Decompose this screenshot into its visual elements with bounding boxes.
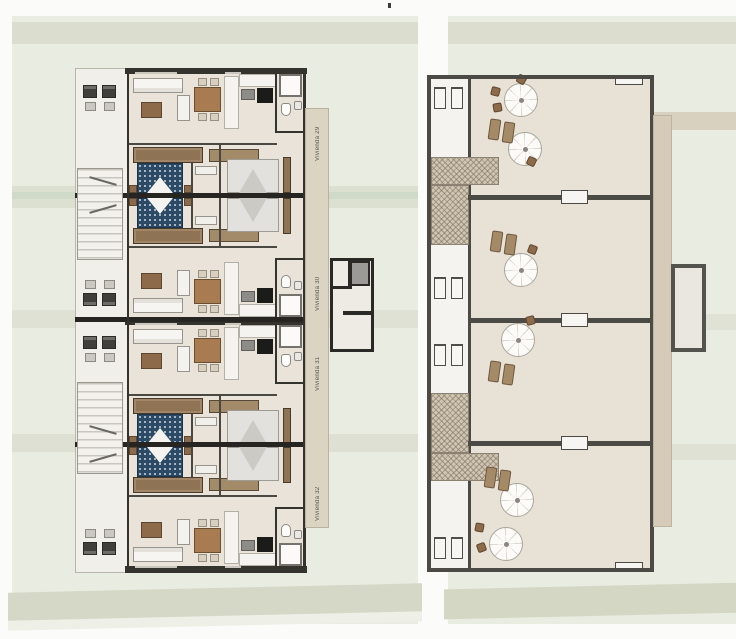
hall-dresser-icon — [195, 216, 217, 225]
balcony-armchair-icon — [83, 336, 97, 349]
parasol-pole-icon — [519, 98, 524, 103]
wardrobe-icon — [283, 408, 291, 444]
interior-wall — [219, 447, 221, 495]
parasol-icon — [501, 323, 535, 357]
dining-table-icon — [194, 528, 221, 553]
stairs-hatch-icon — [431, 157, 499, 185]
terrace-divider-wall — [468, 441, 650, 446]
sofa-icon — [133, 547, 183, 562]
site-stripe — [448, 22, 736, 44]
parasol-pole-icon — [519, 268, 524, 273]
interior-wall — [127, 68, 129, 573]
bathroom-wall — [275, 71, 277, 133]
elevator-icon — [350, 261, 370, 286]
balcony-table-icon — [104, 280, 115, 289]
door-icon — [561, 313, 588, 327]
interior-wall — [219, 198, 221, 246]
kitchen-counter — [239, 304, 277, 317]
dining-chair-icon — [198, 270, 207, 278]
window-icon — [451, 277, 463, 299]
wardrobe-icon — [283, 447, 291, 483]
fridge-icon — [241, 540, 255, 551]
window-icon — [451, 344, 463, 366]
window-icon — [225, 567, 241, 569]
bathroom-wall — [275, 258, 305, 260]
hall-dresser-icon — [195, 417, 217, 426]
balcony-armchair-icon — [102, 85, 116, 98]
unit-label: Vivienda 30 — [306, 259, 330, 329]
nightstand-icon — [129, 185, 137, 193]
balcony-table-icon — [85, 353, 96, 362]
shower-icon — [279, 294, 302, 317]
sink-icon — [294, 101, 302, 110]
balcony-armchair-icon — [83, 293, 97, 306]
sun-lounger-icon — [133, 477, 203, 493]
interior-wall — [128, 143, 277, 145]
sink-icon — [294, 530, 302, 539]
interior-wall — [219, 396, 221, 444]
roof-wall — [427, 75, 654, 79]
unit-label: Vivienda 32 — [306, 469, 330, 539]
interior-wall — [191, 414, 193, 444]
cooktop-icon — [257, 288, 273, 303]
bathroom-wall — [275, 258, 277, 320]
toilet-icon — [281, 103, 291, 116]
dining-chair-icon — [210, 270, 219, 278]
parasol-pole-icon — [516, 338, 521, 343]
coffee-table-icon — [141, 522, 162, 538]
roof-wall — [468, 79, 471, 568]
wardrobe-icon — [283, 198, 291, 234]
armchair-icon — [177, 346, 190, 372]
annex-wall — [348, 261, 351, 288]
exterior-wall — [125, 569, 307, 573]
coffee-table-icon — [141, 273, 162, 289]
parasol-icon — [504, 253, 538, 287]
nightstand-icon — [129, 198, 137, 206]
shower-icon — [279, 543, 302, 566]
parasol-icon — [489, 527, 523, 561]
stairs-icon — [77, 168, 123, 260]
window-icon — [434, 344, 446, 366]
sun-lounger-icon — [133, 398, 203, 414]
dining-chair-icon — [198, 519, 207, 527]
roof-wall — [427, 75, 431, 572]
annex-wall — [343, 311, 371, 315]
bathroom-wall — [275, 382, 305, 384]
dining-chair-icon — [210, 78, 219, 86]
sun-lounger-icon — [133, 147, 203, 163]
balcony-armchair-icon — [102, 293, 116, 306]
roof-shaft-outline — [671, 264, 706, 352]
interior-wall — [191, 198, 193, 228]
balcony-armchair-icon — [102, 542, 116, 555]
fridge-icon — [241, 340, 255, 351]
patio-chair-icon — [492, 102, 502, 112]
kitchen-counter — [239, 74, 277, 87]
bathroom-wall — [275, 507, 277, 569]
stair-annex — [330, 258, 374, 352]
cooktop-icon — [257, 88, 273, 103]
balcony-armchair-icon — [83, 85, 97, 98]
toilet-icon — [281, 524, 291, 537]
window-icon — [434, 277, 446, 299]
roof-solarium-plan — [427, 75, 654, 572]
hall-dresser-icon — [195, 465, 217, 474]
bathroom-wall — [275, 131, 305, 133]
armchair-icon — [177, 95, 190, 121]
kitchen-counter — [224, 76, 239, 129]
balcony-armchair-icon — [83, 542, 97, 555]
roof-wall — [427, 568, 654, 572]
unit-label: Vivienda 31 — [306, 339, 330, 409]
toilet-icon — [281, 275, 291, 288]
dining-chair-icon — [198, 364, 207, 372]
dining-chair-icon — [198, 329, 207, 337]
kitchen-counter — [224, 262, 239, 315]
shower-icon — [279, 325, 302, 348]
interior-wall — [128, 495, 277, 497]
floor-plan: Vivienda 29Vivienda 30Vivienda 31Viviend… — [75, 68, 331, 573]
dining-table-icon — [194, 87, 221, 112]
sofa-icon — [133, 78, 183, 93]
interior-wall — [191, 447, 193, 477]
coffee-table-icon — [141, 102, 162, 118]
site-stripe — [444, 583, 736, 620]
balcony-table-icon — [85, 529, 96, 538]
window-icon — [434, 87, 446, 109]
shower-icon — [279, 74, 302, 97]
balcony-table-icon — [104, 102, 115, 111]
print-artifact — [388, 3, 391, 8]
plan-sheet: Vivienda 29Vivienda 30Vivienda 31Viviend… — [0, 0, 736, 639]
terrace-divider-wall — [468, 195, 650, 200]
parasol-pole-icon — [523, 147, 528, 152]
window-icon — [135, 72, 177, 74]
balcony-table-icon — [104, 529, 115, 538]
kitchen-counter — [239, 553, 277, 566]
nightstand-icon — [129, 447, 137, 455]
dining-chair-icon — [210, 554, 219, 562]
stairs-hatch-icon — [431, 185, 469, 245]
bathroom-wall — [275, 322, 277, 384]
hall-dresser-icon — [195, 166, 217, 175]
armchair-icon — [177, 270, 190, 296]
sofa-icon — [133, 298, 183, 313]
window-icon — [135, 323, 177, 325]
window-icon — [434, 537, 446, 559]
bathroom-wall — [275, 507, 305, 509]
armchair-icon — [177, 519, 190, 545]
interior-wall — [219, 145, 221, 193]
kitchen-counter — [239, 325, 277, 338]
balcony-armchair-icon — [102, 336, 116, 349]
door-icon — [561, 436, 588, 450]
unit-label-strip: Vivienda 29Vivienda 30Vivienda 31Viviend… — [305, 108, 329, 528]
balcony-table-icon — [85, 280, 96, 289]
exterior-wall — [125, 68, 307, 71]
balcony-table-icon — [104, 353, 115, 362]
coffee-table-icon — [141, 353, 162, 369]
balcony-table-icon — [85, 102, 96, 111]
dining-chair-icon — [198, 305, 207, 313]
stairs-hatch-icon — [431, 393, 469, 453]
site-stripe — [12, 22, 418, 44]
roof-side-strip — [653, 115, 672, 527]
patio-chair-icon — [474, 522, 484, 532]
terrace-divider-wall — [468, 318, 650, 323]
fridge-icon — [241, 291, 255, 302]
window-icon — [451, 87, 463, 109]
dining-chair-icon — [210, 113, 219, 121]
party-wall — [75, 317, 306, 322]
window-icon — [135, 567, 177, 569]
roof-access-floor — [431, 79, 468, 568]
interior-wall — [128, 246, 277, 248]
parasol-icon — [504, 83, 538, 117]
fridge-icon — [241, 89, 255, 100]
interior-wall — [128, 394, 277, 396]
kitchen-counter — [224, 511, 239, 564]
sofa-icon — [133, 329, 183, 344]
dining-table-icon — [194, 338, 221, 363]
cooktop-icon — [257, 339, 273, 354]
parasol-pole-icon — [515, 498, 520, 503]
dining-chair-icon — [210, 329, 219, 337]
dining-chair-icon — [198, 554, 207, 562]
cooktop-icon — [257, 537, 273, 552]
dining-chair-icon — [198, 113, 207, 121]
dining-chair-icon — [210, 364, 219, 372]
parasol-pole-icon — [504, 542, 509, 547]
kitchen-counter — [224, 327, 239, 380]
wardrobe-icon — [283, 157, 291, 193]
sun-lounger-icon — [133, 228, 203, 244]
dining-chair-icon — [210, 519, 219, 527]
dining-chair-icon — [198, 78, 207, 86]
interior-wall — [191, 163, 193, 193]
dining-table-icon — [194, 279, 221, 304]
sink-icon — [294, 352, 302, 361]
window-icon — [451, 537, 463, 559]
unit-label: Vivienda 29 — [306, 109, 330, 179]
dining-chair-icon — [210, 305, 219, 313]
sink-icon — [294, 281, 302, 290]
toilet-icon — [281, 354, 291, 367]
door-icon — [561, 190, 588, 204]
